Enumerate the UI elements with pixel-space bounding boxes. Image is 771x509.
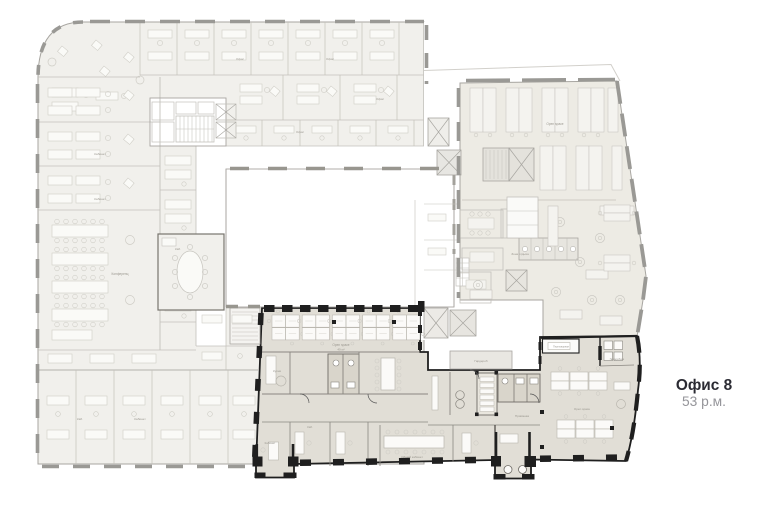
svg-text:Переговорная: Переговорная <box>553 346 569 349</box>
svg-text:Каб.: Каб. <box>175 247 181 251</box>
svg-text:Офис: Офис <box>296 130 304 134</box>
svg-text:Офис 8: Офис 8 <box>676 377 733 394</box>
svg-text:Кабинет: Кабинет <box>94 152 106 156</box>
svg-text:Кухня: Кухня <box>273 369 281 373</box>
svg-text:Каб.: Каб. <box>307 425 313 429</box>
svg-text:49 м²: 49 м² <box>337 348 344 352</box>
svg-text:Open space: Open space <box>546 122 563 126</box>
svg-text:Open space: Open space <box>332 343 349 347</box>
svg-text:Офис: Офис <box>236 57 244 61</box>
svg-text:Офис: Офис <box>376 97 384 101</box>
svg-text:Приёмная: Приёмная <box>515 414 530 418</box>
svg-text:Офис: Офис <box>326 57 334 61</box>
svg-text:Кабинет: Кабинет <box>94 197 106 201</box>
svg-text:Open space: Open space <box>574 407 591 411</box>
svg-text:Кабинет: Кабинет <box>134 417 146 421</box>
svg-text:Кабинет: Кабинет <box>265 441 276 445</box>
svg-text:53 р.м.: 53 р.м. <box>682 394 726 409</box>
svg-text:Гардеробная: Гардеробная <box>610 358 625 361</box>
svg-text:Зона отдыха: Зона отдыха <box>511 252 529 256</box>
svg-text:Конференц: Конференц <box>112 272 129 276</box>
svg-text:Каб.: Каб. <box>77 417 83 421</box>
svg-text:Гардероб: Гардероб <box>474 359 487 363</box>
